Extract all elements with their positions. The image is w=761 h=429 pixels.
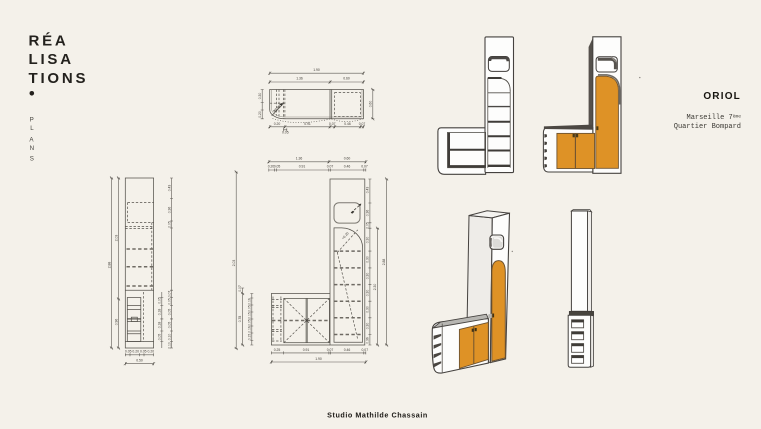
svg-text:0.50: 0.50 [136, 359, 143, 363]
svg-text:0.07: 0.07 [238, 285, 242, 292]
svg-text:0.16: 0.16 [248, 298, 252, 305]
svg-text:2.03: 2.03 [114, 235, 118, 242]
svg-text:0.60: 0.60 [343, 77, 350, 81]
svg-text:0.30: 0.30 [366, 290, 370, 297]
svg-text:N: N [30, 145, 35, 152]
svg-text:0.07: 0.07 [327, 348, 334, 352]
svg-text:0.36: 0.36 [366, 337, 370, 344]
svg-text:0.25: 0.25 [274, 348, 281, 352]
svg-text:0.05: 0.05 [167, 221, 171, 228]
svg-text:0.07: 0.07 [167, 291, 171, 298]
svg-text:0.30: 0.30 [366, 256, 370, 263]
svg-text:0.05: 0.05 [167, 298, 171, 305]
svg-text:0.07: 0.07 [327, 165, 334, 169]
svg-text:ORIOL: ORIOL [703, 91, 741, 102]
svg-text:2.30: 2.30 [373, 284, 377, 291]
svg-text:0.60: 0.60 [344, 156, 351, 160]
svg-text:1.36: 1.36 [296, 156, 303, 160]
svg-text:0.91: 0.91 [299, 165, 306, 169]
svg-text:0.96: 0.96 [114, 319, 118, 326]
svg-text:0.36: 0.36 [167, 207, 171, 214]
svg-text:0.30: 0.30 [258, 93, 262, 100]
svg-text:0.43: 0.43 [167, 185, 171, 192]
svg-text:0.18: 0.18 [158, 309, 162, 316]
svg-text:LISA: LISA [29, 51, 74, 68]
svg-text:0.30: 0.30 [366, 306, 370, 313]
svg-text:0.05: 0.05 [167, 322, 171, 329]
svg-text:P: P [30, 117, 35, 124]
svg-text:0.36: 0.36 [366, 210, 370, 217]
svg-text:0.20: 0.20 [258, 111, 262, 118]
svg-text:0.91: 0.91 [304, 122, 311, 126]
svg-text:0.07: 0.07 [361, 165, 368, 169]
svg-text:S: S [30, 155, 35, 162]
svg-text:2.88: 2.88 [107, 262, 111, 269]
svg-text:0.46: 0.46 [344, 122, 351, 126]
svg-text:0.46: 0.46 [344, 348, 351, 352]
svg-text:1.36: 1.36 [296, 77, 303, 81]
svg-text:Studio Mathilde Chassain: Studio Mathilde Chassain [327, 410, 428, 419]
svg-text:0.18: 0.18 [158, 322, 162, 329]
svg-text:0.10: 0.10 [167, 342, 171, 349]
svg-text:0.91: 0.91 [303, 348, 310, 352]
svg-text:RÉA: RÉA [29, 32, 69, 49]
svg-text:0.05: 0.05 [167, 309, 171, 316]
svg-text:0.15: 0.15 [248, 334, 252, 341]
svg-text:L: L [30, 125, 34, 132]
svg-text:1.90: 1.90 [313, 68, 320, 72]
svg-text:2.88: 2.88 [382, 259, 386, 266]
svg-text:0.20: 0.20 [274, 122, 281, 126]
svg-text:0.05: 0.05 [274, 165, 281, 169]
svg-text:0.10: 0.10 [167, 334, 171, 341]
svg-text:0.16: 0.16 [248, 326, 252, 333]
svg-text:0.05: 0.05 [248, 319, 252, 326]
svg-text:0.05: 0.05 [366, 222, 370, 229]
svg-text:0.05: 0.05 [282, 131, 289, 135]
svg-text:0.43: 0.43 [366, 187, 370, 194]
svg-text:A: A [29, 137, 34, 144]
svg-text:0.30: 0.30 [366, 273, 370, 280]
svg-text:0.46: 0.46 [344, 165, 351, 169]
svg-text:0.07: 0.07 [361, 348, 368, 352]
svg-text:0.05 0.20 0.05 0.20: 0.05 0.20 0.05 0.20 [125, 350, 154, 354]
svg-text:0.15: 0.15 [248, 312, 252, 319]
svg-text:0.60: 0.60 [369, 101, 373, 108]
svg-text:Quartier Bompard: Quartier Bompard [674, 123, 741, 131]
svg-text:0.30: 0.30 [366, 237, 370, 244]
svg-text:2.03: 2.03 [232, 260, 236, 267]
svg-text:1.90: 1.90 [315, 357, 322, 361]
svg-text:0.78: 0.78 [238, 316, 242, 323]
svg-text:0.30: 0.30 [366, 323, 370, 330]
svg-text:0.05: 0.05 [158, 297, 162, 304]
svg-text:0.05: 0.05 [248, 305, 252, 312]
svg-text:TIONS: TIONS [29, 70, 89, 87]
svg-text:0.05: 0.05 [158, 334, 162, 341]
